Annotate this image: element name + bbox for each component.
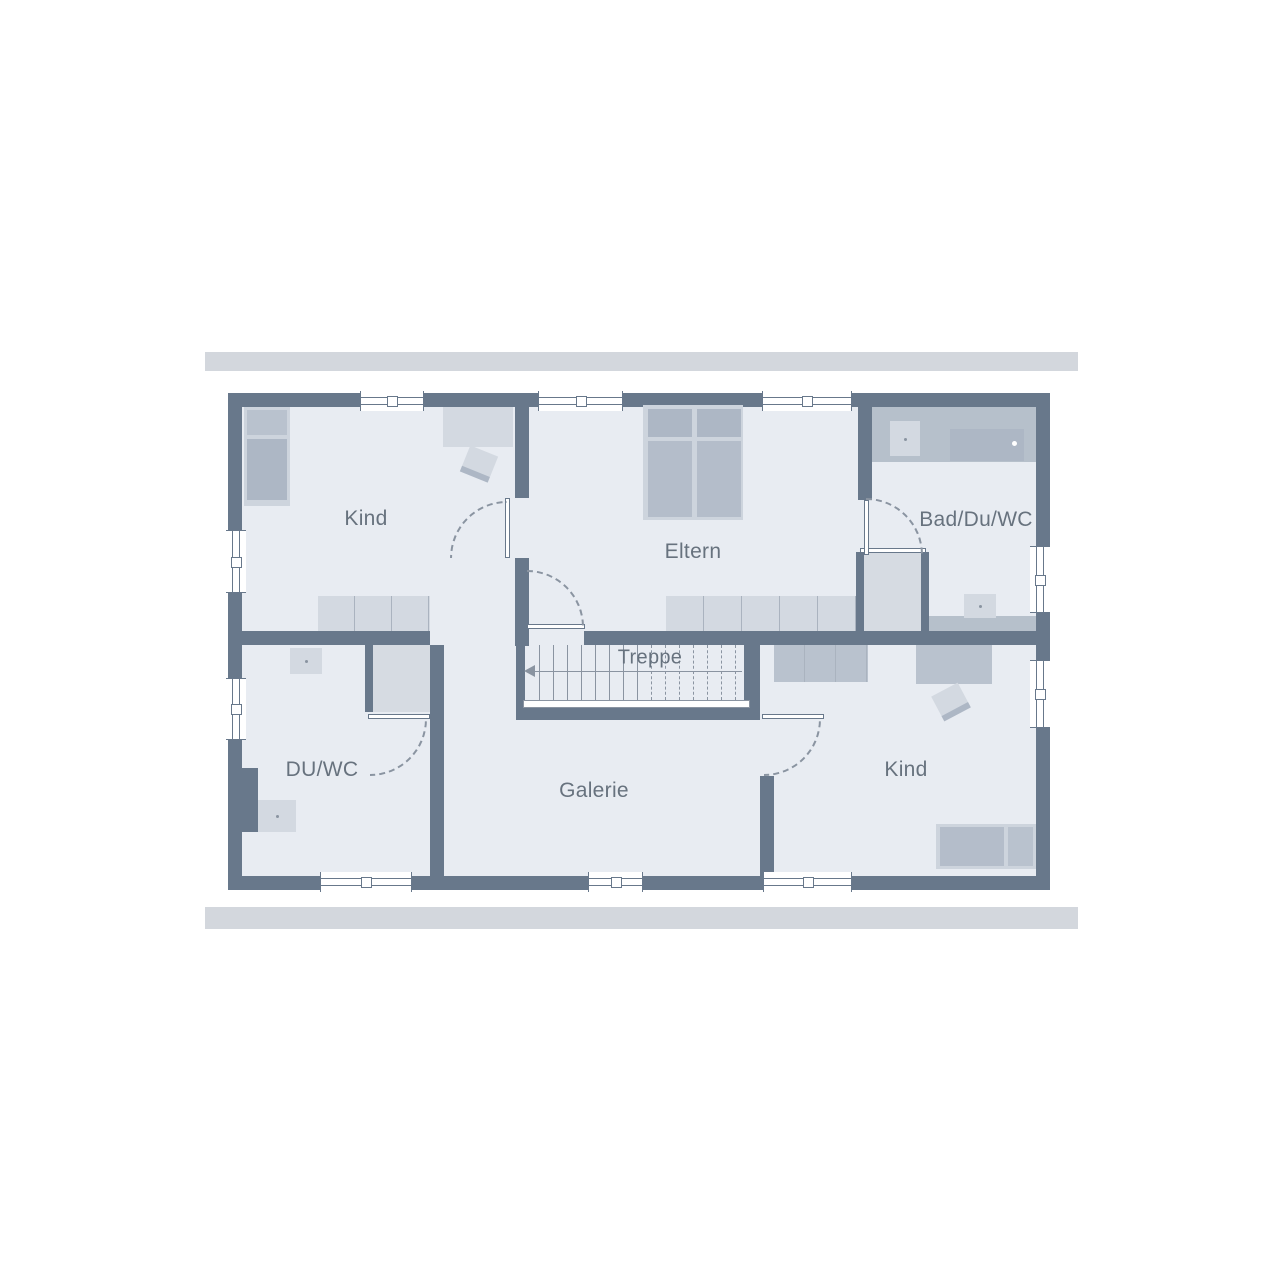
bed-pillow-kind-tl: [247, 410, 287, 435]
bed-pillow-left-eltern: [648, 409, 692, 437]
window-top-kind-tl: [360, 391, 424, 411]
room-label-kind-br: Kind: [884, 758, 927, 782]
window-left-kind-tl: [226, 530, 246, 593]
wall-kind-eltern-upper: [515, 393, 529, 498]
window-left-duwc: [226, 678, 246, 740]
bed-pillow-right-eltern: [697, 409, 741, 437]
door-arc-eltern: [527, 570, 584, 627]
wall-galerie-kindbr: [760, 776, 774, 876]
bed-pillow-kind-br: [1008, 827, 1033, 866]
room-label-duwc: DU/WC: [286, 758, 359, 782]
stair-walkline: [532, 671, 742, 672]
window-right-kind-br: [1030, 660, 1050, 728]
window-bottom-duwc: [320, 872, 412, 892]
shower-wall-right-bad: [921, 552, 929, 631]
floorplan-page: Kind Eltern Bad/Du/WC Treppe DU/WC Galer…: [0, 0, 1280, 1280]
pilaster-duwc: [242, 768, 258, 832]
shower-floor-bad: [864, 552, 921, 631]
window-bottom-kind-br: [763, 872, 852, 892]
bed-mattress-kind-br: [940, 827, 1004, 866]
sink-bad: [890, 421, 920, 456]
shower-wall-left-bad: [856, 552, 864, 631]
wardrobe-eltern: [666, 596, 856, 631]
room-label-kind-tl: Kind: [344, 507, 387, 531]
toilet-duwc: [290, 648, 322, 674]
wall-middle-horizontal: [584, 631, 1050, 645]
shower-wall-duwc: [365, 645, 373, 712]
stair-direction-arrow: [524, 665, 535, 677]
wall-eltern-bad: [858, 393, 872, 500]
door-arc-kind-br: [764, 719, 821, 776]
window-top-eltern-right: [762, 391, 852, 411]
wall-duwc-galerie: [430, 645, 444, 876]
stair-tread: [553, 645, 554, 700]
toilet-bad: [964, 594, 996, 618]
wardrobe-kind-br: [774, 645, 868, 682]
door-arc-kind-tl: [450, 501, 507, 558]
room-label-bad: Bad/Du/WC: [919, 508, 1033, 532]
bed-mattress-kind-tl: [247, 439, 287, 500]
roof-overhang-bottom: [205, 907, 1078, 929]
stair-tread: [581, 645, 582, 700]
stair-tread: [721, 645, 722, 700]
room-label-eltern: Eltern: [665, 540, 722, 564]
shower-floor-duwc: [373, 645, 430, 712]
door-arc-bad: [866, 498, 923, 555]
wall-kindtl-duwc: [228, 631, 430, 645]
desk-kind-tl: [443, 407, 513, 447]
sink-duwc: [258, 800, 296, 832]
stair-tread: [693, 645, 694, 700]
stair-tread: [595, 645, 596, 700]
bathtub-faucet: [1012, 441, 1017, 446]
window-right-bad: [1030, 546, 1050, 613]
stair-tread: [539, 645, 540, 700]
desk-kind-br: [916, 645, 992, 684]
door-arc-duwc: [370, 719, 427, 776]
stair-tread: [707, 645, 708, 700]
roof-overhang-top: [205, 352, 1078, 371]
stair-landing-strip: [523, 700, 750, 708]
room-label-treppe: Treppe: [618, 647, 682, 670]
bed-mattress-right-eltern: [697, 441, 741, 517]
stair-tread: [735, 645, 736, 700]
stairwell-wall-bottom: [516, 708, 760, 720]
bed-mattress-left-eltern: [648, 441, 692, 517]
room-label-galerie: Galerie: [559, 779, 629, 803]
window-bottom-galerie: [588, 872, 643, 892]
wardrobe-kind-tl: [318, 596, 430, 631]
stair-tread: [609, 645, 610, 700]
stair-tread: [567, 645, 568, 700]
window-top-eltern-left: [538, 391, 623, 411]
